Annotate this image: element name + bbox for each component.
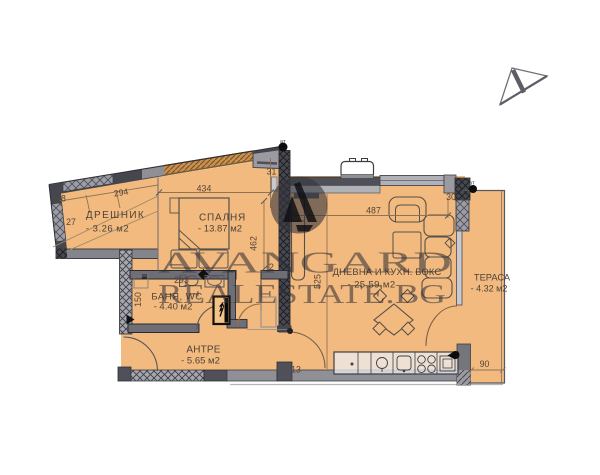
- svg-text:- 5.65 м2: - 5.65 м2: [181, 356, 220, 367]
- svg-text:150: 150: [133, 292, 143, 307]
- svg-text:АНТРЕ: АНТРЕ: [186, 345, 220, 356]
- svg-text:- 3.26 м2: - 3.26 м2: [86, 224, 129, 235]
- svg-text:- 13.87 м2: - 13.87 м2: [198, 224, 242, 235]
- svg-text:СПАЛНЯ: СПАЛНЯ: [199, 213, 246, 224]
- svg-text:28: 28: [56, 194, 66, 204]
- svg-text:- 4.32 м2: - 4.32 м2: [471, 284, 508, 294]
- svg-text:ат: ат: [469, 181, 475, 187]
- svg-text:487: 487: [366, 206, 381, 216]
- svg-text:434: 434: [197, 183, 212, 193]
- svg-text:13: 13: [291, 365, 301, 375]
- svg-text:ТЕРАСА: ТЕРАСА: [474, 273, 511, 283]
- svg-text:AVANGARD: AVANGARD: [158, 245, 452, 280]
- svg-text:ДРЕШНИК: ДРЕШНИК: [86, 210, 145, 221]
- svg-text:ат: ат: [280, 139, 286, 145]
- svg-text:90: 90: [480, 359, 490, 369]
- svg-text:31: 31: [267, 167, 277, 177]
- svg-text:27: 27: [66, 217, 76, 227]
- svg-text:REALESTATE.BG: REALESTATE.BG: [158, 279, 446, 309]
- svg-text:30: 30: [446, 192, 456, 202]
